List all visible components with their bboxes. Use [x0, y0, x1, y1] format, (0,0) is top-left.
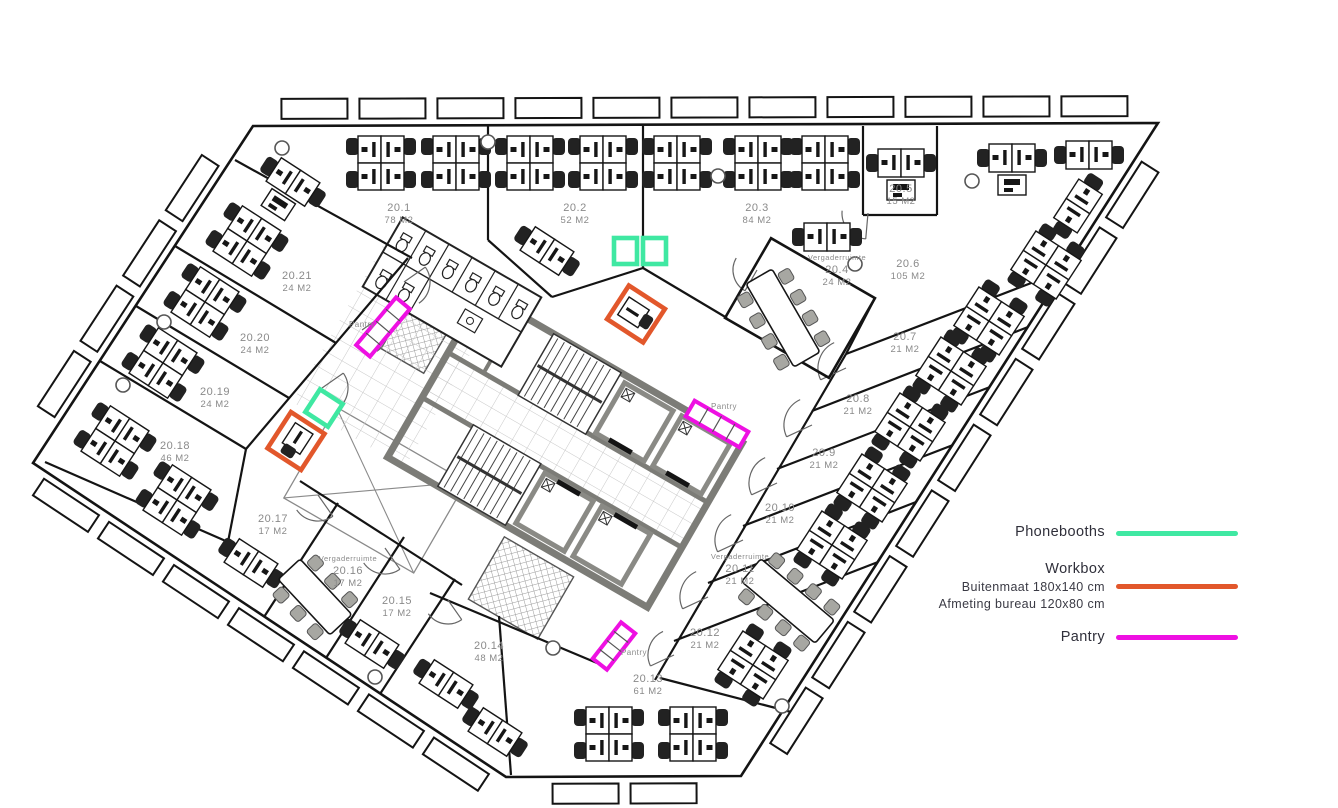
legend-phonebooths-line — [1116, 531, 1238, 536]
room-id-20.8: 20.8 — [846, 393, 869, 405]
column-marker — [481, 135, 495, 149]
legend-phonebooths-label: Phonebooths — [900, 524, 1105, 540]
room-id-20.16: 20.16 — [333, 565, 363, 577]
room-id-20.21: 20.21 — [282, 270, 312, 282]
room-id-20.12: 20.12 — [690, 627, 720, 639]
room-area-20.19: 24 M2 — [201, 399, 230, 410]
column-marker — [965, 174, 979, 188]
column-marker — [546, 641, 560, 655]
column-marker — [116, 378, 130, 392]
room-area-20.4: 24 M2 — [823, 277, 852, 288]
room-area-20.6: 105 M2 — [891, 271, 926, 282]
room-id-20.6: 20.6 — [896, 258, 919, 270]
room-prefix-20.4: Vergaderruimte — [808, 253, 866, 262]
room-id-20.15: 20.15 — [382, 595, 412, 607]
legend-pantry-label: Pantry — [900, 629, 1105, 645]
room-id-20.14: 20.14 — [474, 640, 504, 652]
room-id-20.2: 20.2 — [563, 202, 586, 214]
column-marker — [711, 169, 725, 183]
room-area-20.3: 84 M2 — [743, 215, 772, 226]
room-area-20.11: 21 M2 — [726, 576, 755, 587]
room-area-20.16: 17 M2 — [334, 578, 363, 589]
legend-workbox-sub2: Afmeting bureau 120x80 cm — [860, 597, 1105, 611]
room-area-20.8: 21 M2 — [844, 406, 873, 417]
room-id-20.17: 20.17 — [258, 513, 288, 525]
room-area-20.12: 21 M2 — [691, 640, 720, 651]
room-id-20.10: 20.10 — [765, 502, 795, 514]
room-area-20.7: 21 M2 — [891, 344, 920, 355]
room-area-20.21: 24 M2 — [283, 283, 312, 294]
plan-small-label-1: Pantry — [711, 402, 737, 411]
legend-workbox-label: Workbox — [900, 561, 1105, 577]
room-prefix-20.16: Vergaderruimte — [319, 554, 377, 563]
room-prefix-20.11: Vergaderruimte — [711, 552, 769, 561]
room-area-20.18: 46 M2 — [161, 453, 190, 464]
room-id-20.9: 20.9 — [812, 447, 835, 459]
column-marker — [157, 315, 171, 329]
room-id-20.5: 20.5 — [889, 183, 912, 195]
column-marker — [775, 699, 789, 713]
column-marker — [368, 670, 382, 684]
room-area-20.20: 24 M2 — [241, 345, 270, 356]
legend-workbox-line — [1116, 584, 1238, 589]
floorplan-drawing: 20.178 M220.252 M220.384 M2Vergaderruimt… — [0, 0, 1338, 808]
room-area-20.15: 17 M2 — [383, 608, 412, 619]
room-area-20.10: 21 M2 — [766, 515, 795, 526]
room-area-20.2: 52 M2 — [561, 215, 590, 226]
room-area-20.5: 15 M2 — [887, 196, 916, 207]
room-id-20.11: 20.11 — [725, 563, 754, 575]
room-id-20.13: 20.13 — [633, 673, 663, 685]
room-id-20.4: 20.4 — [825, 264, 848, 276]
room-id-20.3: 20.3 — [745, 202, 768, 214]
room-area-20.17: 17 M2 — [259, 526, 288, 537]
room-id-20.1: 20.1 — [387, 202, 410, 214]
room-id-20.19: 20.19 — [200, 386, 230, 398]
column-marker — [275, 141, 289, 155]
plan-small-label-0: Pantry — [349, 320, 375, 329]
room-area-20.1: 78 M2 — [385, 215, 414, 226]
room-id-20.20: 20.20 — [240, 332, 270, 344]
room-id-20.7: 20.7 — [893, 331, 916, 343]
floorplan-page: 20.178 M220.252 M220.384 M2Vergaderruimt… — [0, 0, 1338, 808]
legend-pantry-line — [1116, 635, 1238, 640]
plan-small-label-2: Pantry — [621, 648, 647, 657]
room-area-20.13: 61 M2 — [634, 686, 663, 697]
room-id-20.18: 20.18 — [160, 440, 190, 452]
room-area-20.14: 48 M2 — [475, 653, 504, 664]
room-area-20.9: 21 M2 — [810, 460, 839, 471]
legend-workbox-sub1: Buitenmaat 180x140 cm — [860, 580, 1105, 594]
